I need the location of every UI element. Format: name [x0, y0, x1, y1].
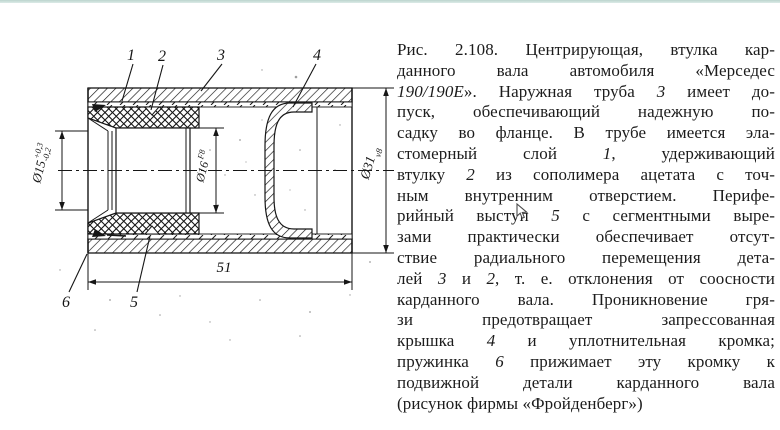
caption-line: пуск, обеспечивающий надежную по- — [397, 102, 775, 123]
caption-line: ствие радиального перемещения дета- — [397, 248, 775, 269]
caption-line: втулку 2 из сополимера ацетата с точ- — [397, 165, 775, 186]
svg-text:2: 2 — [158, 48, 166, 65]
caption-line: Рис. 2.108. Центрирующая, втулка кар- — [397, 40, 775, 61]
caption-line: подвижной детали карданного вала — [397, 373, 775, 394]
caption-line: крышка 4 и уплотнительная кромка; — [397, 331, 775, 352]
dim-31-label: Ø31 — [357, 154, 378, 181]
caption-line: 190/190E». Наружная труба 3 имеет до- — [397, 82, 775, 103]
callout-6: 6 — [62, 254, 87, 311]
dim-31-class: v8 — [373, 147, 385, 158]
dimension-length: 51 — [88, 253, 352, 290]
callout-3: 3 — [201, 47, 225, 91]
caption-line: рийный выступ 5 с сегментными выре- — [397, 206, 775, 227]
caption-line: лей 3 и 2, т. е. отклонения от соосности — [397, 269, 775, 290]
caption-line: зами практически обеспечивает отсут- — [397, 227, 775, 248]
svg-text:3: 3 — [216, 47, 225, 64]
caption-line: карданного вала. Проникновение гря- — [397, 290, 775, 311]
svg-text:1: 1 — [127, 47, 135, 64]
caption-line: стомерный слой 1, удерживающий — [397, 144, 775, 165]
dim-length-label: 51 — [217, 260, 232, 276]
mouse-cursor-icon — [516, 203, 529, 220]
caption-line: ным внутренним отверстием. Перифе- — [397, 186, 775, 207]
svg-text:6: 6 — [62, 294, 70, 311]
caption-line: садку во фланце. В трубе имеется эла- — [397, 123, 775, 144]
caption-line: (рисунок фирмы «Фройденберг») — [397, 394, 775, 415]
dim-16-class: F8 — [195, 148, 207, 161]
svg-text:4: 4 — [313, 47, 321, 64]
caption-line: данного вала автомобиля «Мерседес — [397, 61, 775, 82]
caption-line: зи предотвращает запрессованная — [397, 310, 775, 331]
figure-drawing: Ø15 +0,3 -0,2 Ø16 F8 Ø31 v8 51 — [0, 0, 400, 425]
dim-15-label: Ø15 — [28, 158, 48, 185]
dim-16-label: Ø16 — [192, 160, 211, 184]
caption-line: пружинка 6 прижимает эту кромку к — [397, 352, 775, 373]
dim-15-lower: -0,2 — [40, 146, 53, 162]
svg-text:5: 5 — [130, 294, 138, 311]
figure-caption: Рис. 2.108. Центрирующая, втулка кар-дан… — [397, 40, 775, 414]
